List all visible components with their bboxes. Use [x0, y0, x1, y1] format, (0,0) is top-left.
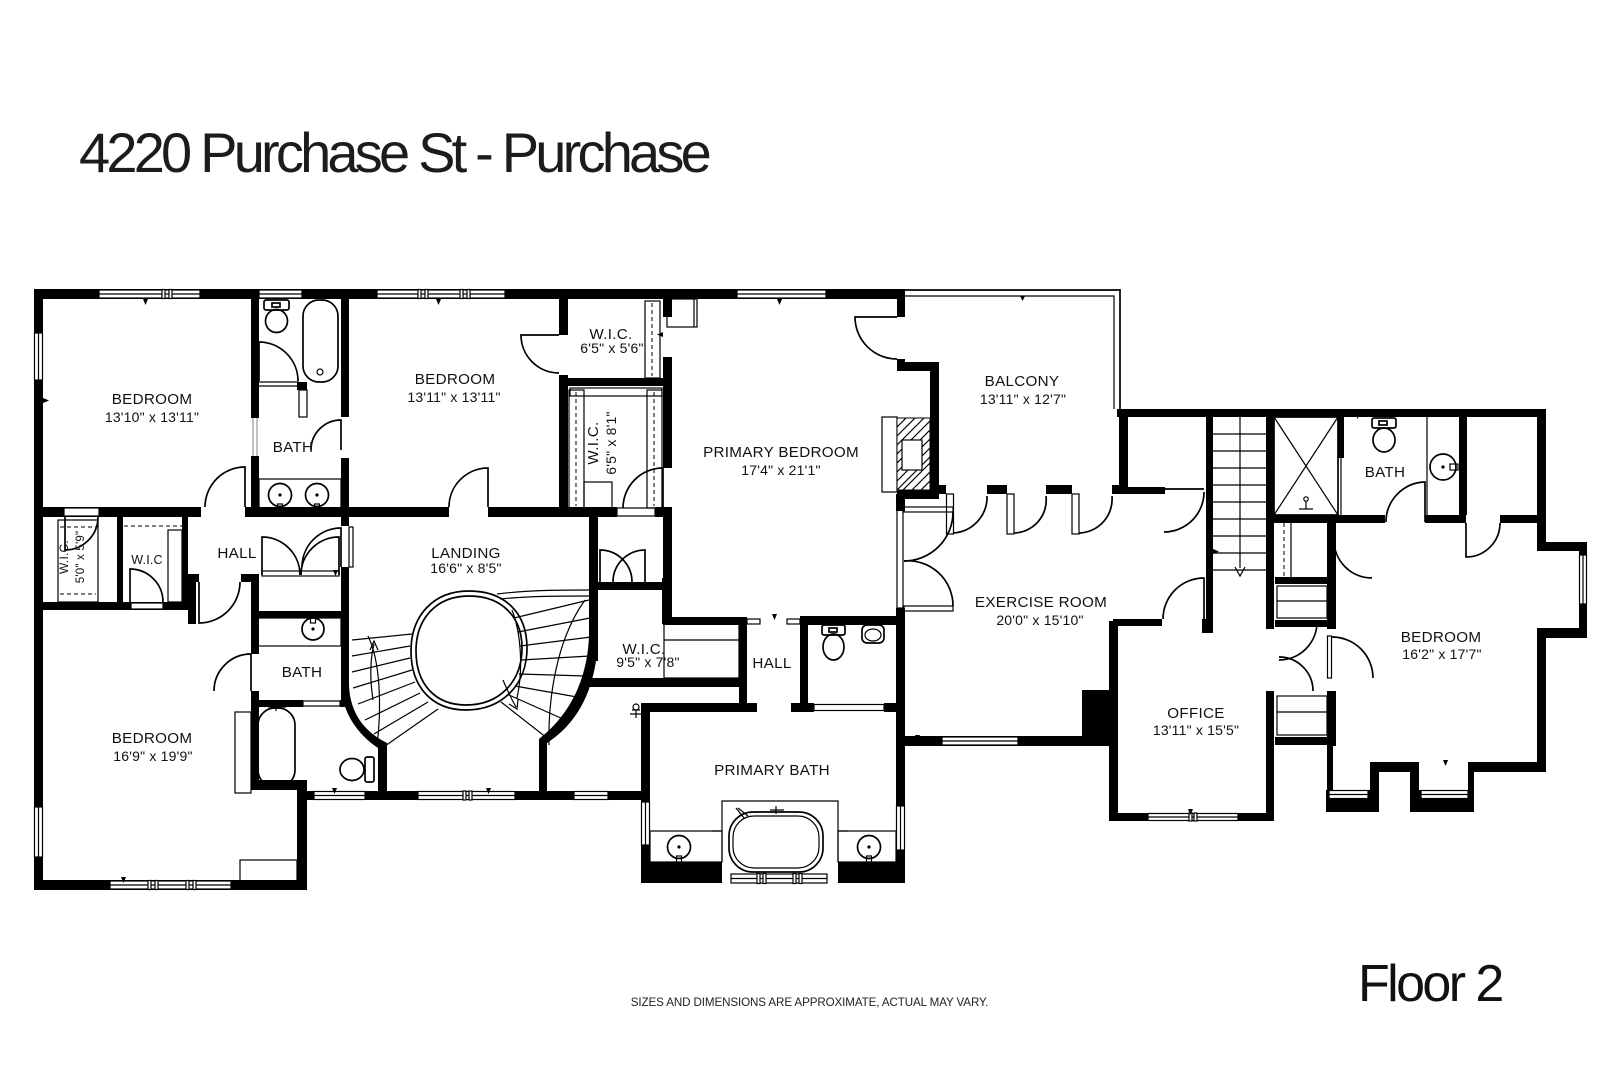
- svg-text:13'10" x 13'11": 13'10" x 13'11": [105, 409, 199, 425]
- svg-text:20'0" x 15'10": 20'0" x 15'10": [996, 612, 1083, 628]
- svg-text:6'5" x 8'1": 6'5" x 8'1": [603, 411, 619, 474]
- svg-text:16'9" x 19'9": 16'9" x 19'9": [113, 748, 192, 764]
- svg-text:13'11" x 13'11": 13'11" x 13'11": [407, 389, 500, 405]
- svg-text:EXERCISE ROOM: EXERCISE ROOM: [975, 594, 1107, 611]
- svg-text:BEDROOM: BEDROOM: [112, 391, 193, 408]
- svg-text:9'5" x 7'8": 9'5" x 7'8": [616, 654, 679, 670]
- svg-text:W.I.C: W.I.C: [131, 553, 163, 567]
- svg-text:PRIMARY BEDROOM: PRIMARY BEDROOM: [703, 444, 859, 461]
- svg-text:BATH: BATH: [273, 439, 314, 456]
- svg-text:OFFICE: OFFICE: [1167, 705, 1225, 722]
- svg-text:BEDROOM: BEDROOM: [1401, 629, 1482, 646]
- svg-text:16'2" x 17'7": 16'2" x 17'7": [1402, 646, 1481, 662]
- svg-text:HALL: HALL: [752, 655, 791, 672]
- svg-text:BALCONY: BALCONY: [985, 373, 1060, 390]
- svg-text:BEDROOM: BEDROOM: [112, 730, 193, 747]
- svg-text:PRIMARY BATH: PRIMARY BATH: [714, 762, 830, 779]
- svg-text:BEDROOM: BEDROOM: [415, 371, 496, 388]
- svg-text:W.I.C.: W.I.C.: [585, 421, 602, 464]
- svg-text:W.I.C.: W.I.C.: [57, 540, 71, 574]
- svg-text:6'5" x 5'6": 6'5" x 5'6": [580, 340, 643, 356]
- svg-text:5'0" x 5'9": 5'0" x 5'9": [75, 531, 87, 583]
- svg-text:13'11" x 15'5": 13'11" x 15'5": [1153, 722, 1239, 738]
- svg-text:17'4" x 21'1": 17'4" x 21'1": [741, 462, 820, 478]
- svg-text:16'6" x 8'5": 16'6" x 8'5": [430, 560, 501, 576]
- svg-text:HALL: HALL: [217, 545, 256, 562]
- svg-text:BATH: BATH: [1365, 464, 1406, 481]
- svg-text:13'11" x 12'7": 13'11" x 12'7": [980, 391, 1066, 407]
- svg-text:BATH: BATH: [282, 664, 323, 681]
